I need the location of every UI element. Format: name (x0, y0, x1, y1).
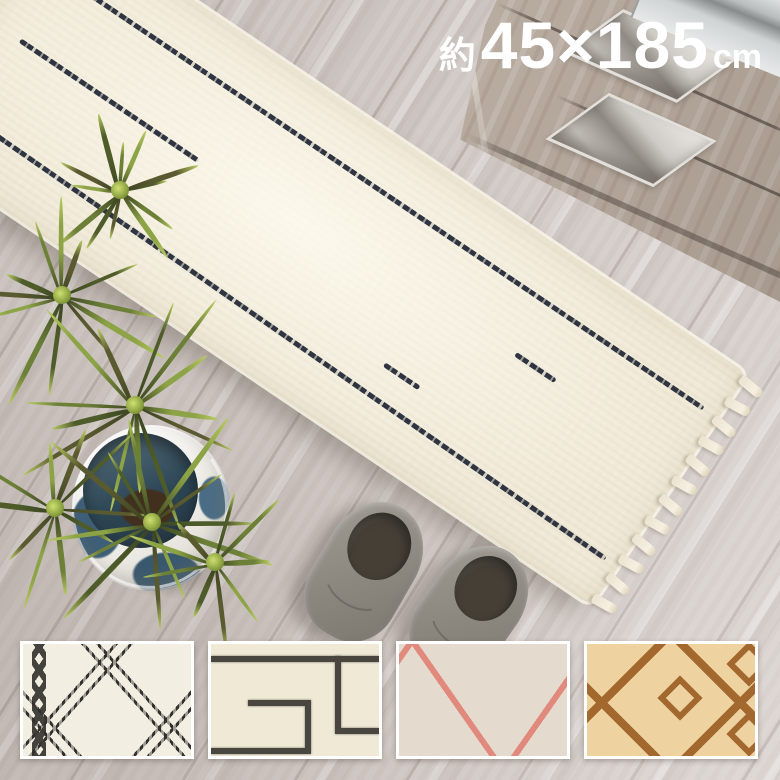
variant-thumbnails (0, 641, 780, 759)
drawer-handle (545, 93, 716, 187)
rug-pattern-t-mark (514, 352, 557, 383)
size-dimensions: 45×185 (481, 12, 709, 78)
size-unit: cm (713, 40, 762, 74)
product-image: 約 45×185 cm (0, 0, 780, 780)
variant-thumb-greige-pink-diamond[interactable] (396, 641, 570, 759)
size-label: 約 45×185 cm (439, 12, 762, 78)
size-approx-prefix: 約 (439, 37, 476, 74)
variant-thumb-ivory-black-diamond[interactable] (20, 641, 194, 759)
swatch-greige-pink-diamond (399, 644, 567, 756)
swatch-sand-brown-diamond (587, 644, 755, 756)
variant-thumb-ivory-charcoal-line[interactable] (208, 641, 382, 759)
variant-thumb-sand-brown-diamond[interactable] (584, 641, 758, 759)
swatch-ivory-black-diamond (23, 644, 191, 756)
rug-pattern-t-mark (383, 362, 421, 390)
swatch-ivory-charcoal-line (211, 644, 379, 756)
room-photo: 約 45×185 cm (0, 0, 780, 780)
